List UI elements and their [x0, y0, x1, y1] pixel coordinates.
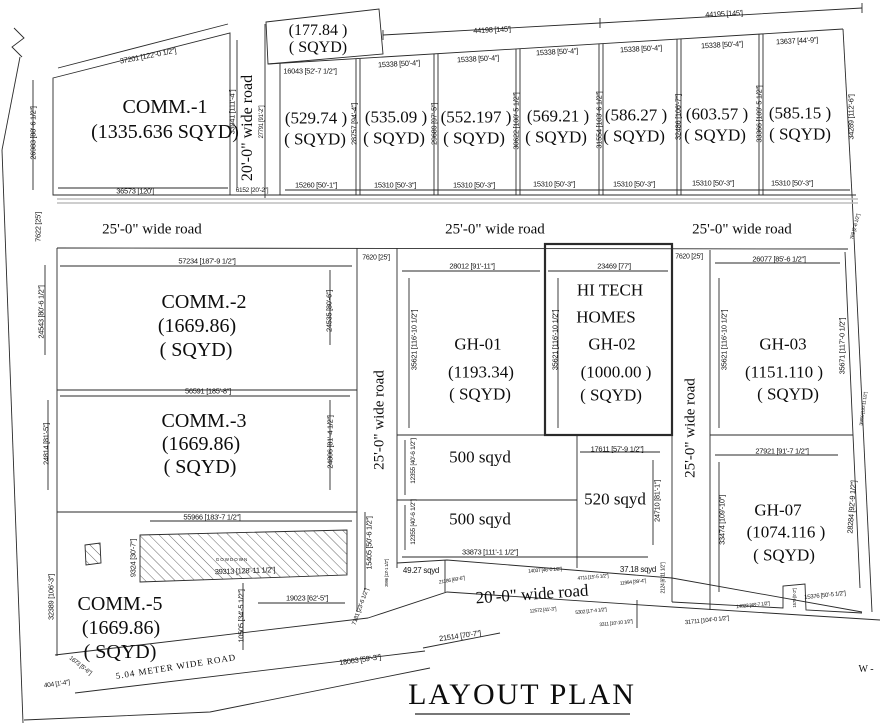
plot-shop5-area: (586.27 ): [605, 107, 667, 124]
road-20-top-label: 20'-0" wide road: [240, 75, 256, 181]
plot-comm5-area: (1669.86): [82, 618, 160, 638]
dim-label: 15310 [50'-3"]: [374, 181, 416, 189]
plot-comm3-unit: ( SQYD): [164, 457, 237, 477]
plot-shop2-area: (535.09 ): [365, 109, 427, 126]
dim-label: 29689 [97'-5"]: [430, 103, 438, 145]
dim-label: 36573 [120']: [116, 187, 153, 195]
dim-label: 7620 [25']: [675, 254, 703, 261]
plot-gh07-unit: ( SQYD): [753, 547, 815, 564]
dim-label: 33873 [111'-1 1/2"]: [462, 548, 518, 556]
dim-label: 32486 [106'-7"]: [674, 94, 682, 140]
plot-shop6-area: (603.57 ): [686, 106, 748, 123]
plot-shop3-area: (552.197 ): [441, 109, 512, 126]
road-25-vertical-right-label: 25'-0" wide road: [684, 378, 699, 478]
dim-label: 35621 [116'-10 1/2"]: [551, 310, 559, 371]
dim-label: 35671 [117'-0 1/2"]: [838, 318, 846, 375]
plot-shop1-unit: ( SQYD): [284, 131, 346, 148]
dim-label: 31554 [103'-6 1/2"]: [595, 91, 603, 148]
plot-177-unit: ( SQYD): [289, 40, 347, 56]
plot-shop4-unit: ( SQYD): [525, 129, 587, 146]
dim-label: 7622 [25']: [34, 212, 42, 242]
plot-comm2-name: COMM.-2: [161, 292, 246, 312]
plot-500a-label: 500 sqyd: [449, 449, 511, 466]
plot-comm1-name: COMM.-1: [122, 97, 207, 117]
dim-label: 23469 [77']: [597, 262, 631, 270]
title-underline: [415, 713, 630, 715]
plot-gh07-name: GH-07: [754, 502, 801, 519]
dim-label: 24543 [80'-6 1/2"]: [37, 285, 45, 338]
plot-shop7-area: (585.15 ): [769, 105, 831, 122]
road-25-vertical-left-label: 25'-0" wide road: [373, 370, 388, 470]
plot-shop4-area: (569.21 ): [527, 108, 589, 125]
dim-label: 15310 [50'-3"]: [613, 180, 655, 188]
plot-500b-label: 500 sqyd: [449, 511, 511, 528]
dim-label: 15338 [50'-4"]: [378, 59, 420, 69]
dim-label: 28757 [94'-4"]: [350, 103, 358, 145]
dim-label: 15338 [50'-4"]: [620, 44, 662, 54]
dim-label: 9324 [30'-7"]: [129, 539, 137, 577]
dim-label: 28012 [91'-11"]: [449, 262, 494, 270]
plot-shop5-unit: ( SQYD): [603, 128, 665, 145]
plot-gh01-name: GH-01: [454, 336, 501, 353]
dim-label: 15310 [50'-3"]: [453, 181, 495, 189]
plot-comm3-name: COMM.-3: [161, 411, 246, 431]
dim-label: 27921 [91'-7 1/2"]: [755, 447, 808, 455]
dim-label: 19023 [62'-5"]: [286, 594, 328, 602]
dim-label: 15405 [50'-6 1/2"]: [365, 516, 373, 569]
plot-3718-label: 37.18 sqyd: [620, 566, 656, 574]
plot-gh01-area: (1193.34): [448, 364, 514, 381]
plot-gh02-area: (1000.00 ): [581, 364, 652, 381]
dim-label: 10505 [34'-5 1/2"]: [237, 589, 245, 642]
road-25-right-label: 25'-0" wide road: [692, 223, 792, 238]
dim-label: 15338 [50'-4"]: [701, 40, 743, 50]
plot-comm5-unit: ( SQYD): [84, 642, 157, 662]
dim-label: 12355 [40'-6 1/2"]: [411, 438, 418, 484]
road-25-left-label: 25'-0" wide road: [102, 223, 202, 238]
dim-label: 26983 [88'-6 1/2"]: [29, 106, 37, 159]
plot-gh02-unit: ( SQYD): [580, 387, 642, 404]
dim-label: 15310 [50'-3"]: [533, 180, 575, 188]
dim-label: 24806 [81'-4 1/2"]: [326, 415, 334, 468]
dim-label: 35621 [116'-10 1/2"]: [720, 310, 728, 371]
dim-label: 15338 [50'-4"]: [536, 47, 578, 57]
dim-label: 16043 [52'-7 1/2"]: [283, 67, 336, 75]
plot-gh07-area: (1074.116 ): [747, 524, 826, 541]
dim-label: 24535 [80'-6"]: [325, 290, 333, 332]
dim-label: 33474 [109'-10"]: [718, 495, 726, 545]
dim-label: 15338 [50'-4"]: [457, 54, 499, 64]
dim-label: 33941 [111'-4"]: [228, 90, 236, 135]
dim-label: 57234 [187'-9 1/2"]: [178, 257, 235, 265]
dim-label: 15310 [50'-3"]: [692, 179, 734, 187]
plot-comm1-area: (1335.636 SQYD): [91, 122, 239, 142]
dim-label: 3996 [13'-1 1/2"]: [385, 559, 390, 587]
plot-gh01-unit: ( SQYD): [449, 386, 511, 403]
dim-label: 17611 [57'-9 1/2"]: [591, 445, 644, 453]
plot-comm2-unit: ( SQYD): [160, 340, 233, 360]
dim-label: 27791 [91'-2"]: [259, 106, 265, 139]
plot-shop1-area: (529.74 ): [285, 110, 347, 127]
plot-gh03-name: GH-03: [759, 336, 806, 353]
dim-label: 56591 [185'-8"]: [185, 387, 231, 395]
plot-shop3-unit: ( SQYD): [443, 130, 505, 147]
plot-gh03-unit: ( SQYD): [757, 386, 819, 403]
plot-shop6-unit: ( SQYD): [684, 127, 746, 144]
plot-gh02-owner-line2: HOMES: [576, 309, 636, 326]
dim-label: 12355 [40'-6 1/2"]: [411, 499, 418, 545]
dim-label: 44195 [145']: [705, 9, 743, 18]
dim-label: 26077 [85'-6 1/2"]: [752, 255, 805, 263]
compass-west-label: W -: [858, 665, 873, 675]
dim-label: 35621 [116'-10 1/2"]: [410, 310, 418, 371]
plot-177-area: (177.84 ): [289, 23, 348, 39]
plot-godown-label: GOWDOWN: [216, 558, 249, 563]
dim-label: 6152 [20'-2"]: [236, 188, 269, 195]
plot-gh02-name: GH-02: [588, 336, 635, 353]
dim-label: 24814 [81'-5"]: [42, 423, 50, 465]
plot-comm2-area: (1669.86): [158, 316, 236, 336]
dim-label: 39313 [128'-11 1/2"]: [215, 566, 276, 576]
plot-520-label: 520 sqyd: [584, 491, 646, 508]
road-25-mid-label: 25'-0" wide road: [445, 223, 545, 238]
dim-label: 32389 [106'-3"]: [47, 574, 55, 620]
dim-label: 34289 [112'-6"]: [847, 94, 855, 139]
dim-label: 24710 [81'-1"]: [653, 480, 661, 522]
plot-comm3-area: (1669.86): [162, 434, 240, 454]
plot-gh02-owner-line1: HI TECH: [577, 282, 643, 299]
dim-label: 15310 [50'-3"]: [771, 179, 813, 187]
dim-label: 13637 [44'-9"]: [776, 36, 818, 46]
dim-label: 7620 [25']: [362, 255, 390, 262]
dim-label: 15260 [50'-1"]: [295, 181, 337, 189]
layout-plan-canvas: COMM.-1 (1335.636 SQYD) (177.84 ) ( SQYD…: [0, 0, 882, 723]
dim-label: 1579 [5'-2"]: [793, 588, 798, 607]
dim-label: 55966 [183'-7 1/2"]: [183, 513, 240, 521]
plot-shop2-unit: ( SQYD): [363, 130, 425, 147]
page-title: LAYOUT PLAN: [408, 680, 636, 710]
plot-4927-label: 49.27 sqyd: [403, 567, 439, 575]
plot-comm5-name: COMM.-5: [77, 594, 162, 614]
plot-shop7-unit: ( SQYD): [769, 126, 831, 143]
dim-label: 33366 [109'-5 1/2"]: [755, 85, 763, 142]
dim-label: 2124 [6'-11 1/2"]: [662, 563, 667, 594]
plot-gh03-area: (1151.110 ): [745, 364, 823, 381]
dim-label: 44198 [145']: [473, 25, 511, 34]
dim-label: 30622 [100'-5 1/2"]: [512, 92, 520, 149]
